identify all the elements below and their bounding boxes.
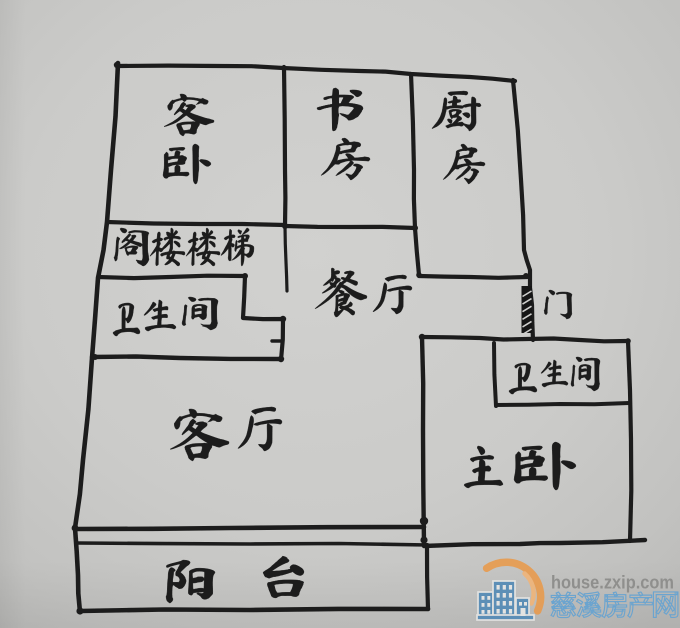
svg-text:house.zxip.com: house.zxip.com — [551, 572, 674, 593]
